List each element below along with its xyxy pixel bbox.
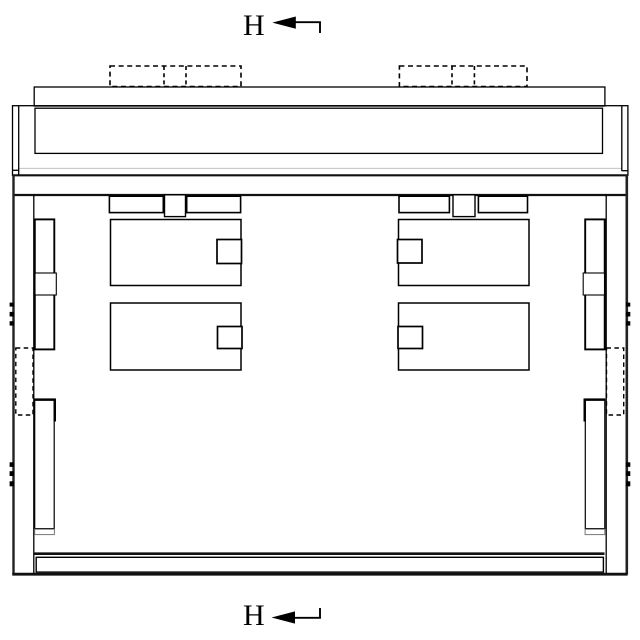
svg-text:H: H: [243, 9, 265, 42]
svg-text:H: H: [243, 599, 265, 632]
